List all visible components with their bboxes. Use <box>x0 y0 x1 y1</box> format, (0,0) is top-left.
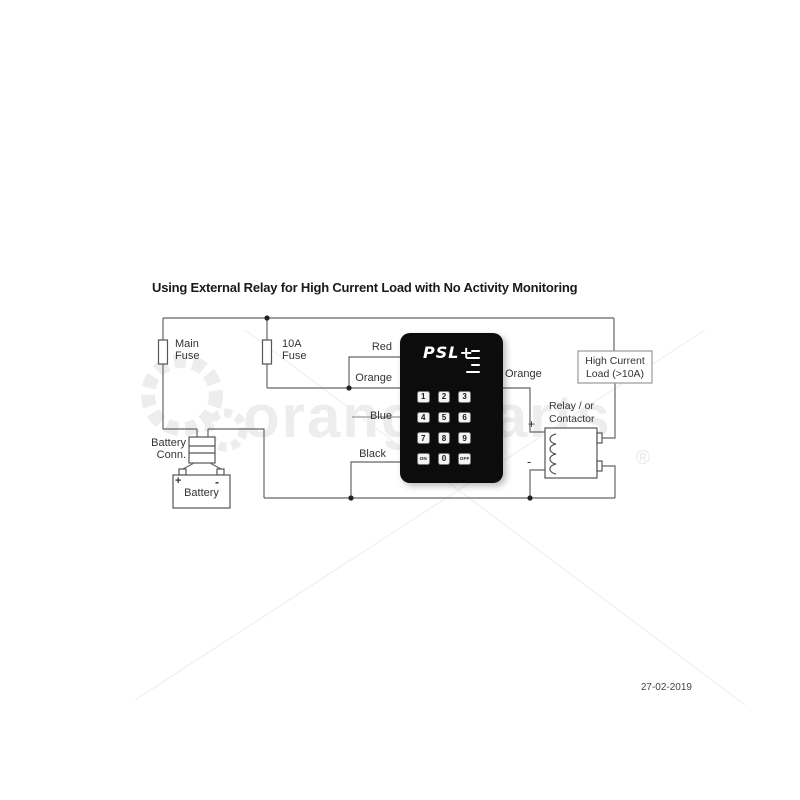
date-stamp: 27-02-2019 <box>600 682 692 693</box>
menu-line-4 <box>466 371 480 373</box>
menu-line-1 <box>471 350 480 352</box>
battery-conn-body <box>189 437 215 463</box>
relay-plus-label: + <box>528 417 535 431</box>
menu-line-2 <box>466 357 480 359</box>
wire-c-to-ground <box>602 466 615 498</box>
relay-label-line1: Relay / or <box>549 400 595 413</box>
junction-dot-red-orange <box>346 385 351 390</box>
keypad-key-3: 3 <box>458 391 471 403</box>
keypad-key-0: 0 <box>438 453 451 465</box>
load-label-line2: Load (>10A) <box>578 368 652 381</box>
keypad-key-9: 9 <box>458 432 471 444</box>
relay-label: Relay / or Contactor <box>549 400 595 425</box>
keypad-key-off: OFF <box>458 453 471 465</box>
fuse-10a-label-line1: 10A <box>282 338 306 350</box>
battery-label: Battery <box>173 487 230 499</box>
wire-label-black: Black <box>324 448 386 460</box>
wire-label-red: Red <box>330 341 392 353</box>
junction-dot-relay-ground <box>527 495 532 500</box>
relay-tab-c <box>597 461 602 471</box>
wire-label-orange-right: Orange <box>505 368 542 380</box>
main-fuse-label-line2: Fuse <box>175 350 199 362</box>
keypad-brand-label: PSL+ <box>423 343 474 362</box>
watermark-gear-large <box>148 361 216 429</box>
keypad-key-4: 4 <box>417 412 430 424</box>
main-fuse-label: Main Fuse <box>175 338 199 362</box>
menu-line-3 <box>471 364 480 366</box>
diagram-page: orangeparts ® <box>0 0 800 800</box>
keypad-key-6: 6 <box>458 412 471 424</box>
battery-conn-label-line1: Battery <box>128 437 186 449</box>
keypad-key-8: 8 <box>438 432 451 444</box>
keypad-key-7: 7 <box>417 432 430 444</box>
relay-minus-label: - <box>527 454 531 469</box>
battery-conn-label-line2: Conn. <box>128 449 186 461</box>
wire-main-fuse-branch <box>163 318 197 429</box>
keypad-key-1: 1 <box>417 391 430 403</box>
wire-relay-minus <box>530 470 545 498</box>
high-current-load-label: High Current Load (>10A) <box>578 355 652 380</box>
keypad-key-5: 5 <box>438 412 451 424</box>
fuse-10a-symbol <box>263 340 272 364</box>
fuse-10a-label: 10A Fuse <box>282 338 306 362</box>
main-fuse-symbol <box>159 340 168 364</box>
junction-dot-top-rail <box>264 315 269 320</box>
battery-conn-label: Battery Conn. <box>128 437 186 461</box>
wire-label-orange-left: Orange <box>320 372 392 384</box>
wire-load-to-no <box>602 383 615 438</box>
wire-orange-right <box>503 388 545 432</box>
keypad-key-on: ON <box>417 453 430 465</box>
battery-conn-legs <box>183 463 221 469</box>
keypad-key-2: 2 <box>438 391 451 403</box>
junction-dot-black-ground <box>348 495 353 500</box>
relay-tab-no <box>597 433 602 443</box>
wire-black <box>351 462 400 498</box>
psl-keypad: PSL+ 1 2 3 4 5 6 7 8 9 ON 0 OFF <box>400 333 503 483</box>
main-fuse-label-line1: Main <box>175 338 199 350</box>
page-title: Using External Relay for High Current Lo… <box>152 280 577 295</box>
load-label-line1: High Current <box>578 355 652 368</box>
battery-plus-label: + <box>175 475 181 487</box>
keypad-keys: 1 2 3 4 5 6 7 8 9 ON 0 OFF <box>417 391 471 465</box>
wire-label-blue: Blue <box>330 410 392 422</box>
relay-label-line2: Contactor <box>549 413 595 426</box>
fuse-10a-label-line2: Fuse <box>282 350 306 362</box>
